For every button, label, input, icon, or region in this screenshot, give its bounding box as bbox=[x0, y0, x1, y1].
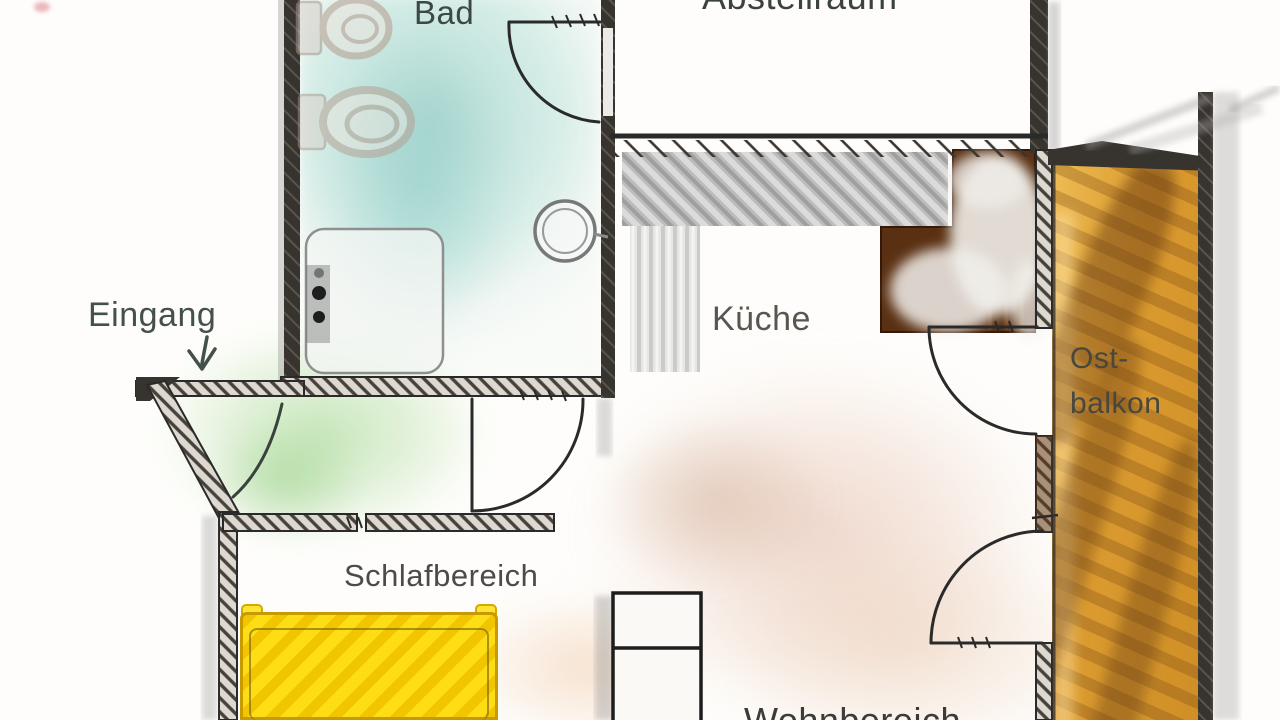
sleeping-area-walls bbox=[202, 512, 554, 720]
room-label-wohnbereich: Wohnbereich bbox=[744, 700, 961, 720]
room-label-bad: Bad bbox=[414, 0, 474, 32]
room-label-eingang: Eingang bbox=[88, 296, 216, 335]
floorplan-canvas: Bad Abstellraum Küche Eingang Ost- balko… bbox=[0, 0, 1280, 720]
entrance-door-arc bbox=[233, 404, 282, 497]
hallway-door bbox=[472, 399, 583, 511]
toilet-fixture-top bbox=[297, 0, 389, 56]
room-label-kueche: Küche bbox=[712, 300, 811, 339]
room-label-ostbalkon: Ost- balkon bbox=[1070, 336, 1161, 426]
shelf-furniture bbox=[595, 593, 701, 720]
room-label-ostbalkon-line2: balkon bbox=[1070, 381, 1161, 426]
entrance-walls bbox=[136, 377, 304, 533]
room-label-ostbalkon-line1: Ost- bbox=[1070, 336, 1161, 381]
entrance-arrow bbox=[189, 337, 215, 369]
room-label-abstellraum: Abstellraum bbox=[702, 0, 898, 18]
kitchen-balcony-door bbox=[929, 327, 1036, 434]
room-label-schlafbereich: Schlafbereich bbox=[344, 558, 538, 594]
bathroom-door bbox=[509, 22, 600, 122]
toilet-fixture-lower bbox=[299, 90, 411, 154]
sink-fixture bbox=[535, 201, 608, 261]
living-balcony-door bbox=[931, 531, 1042, 643]
bathtub-fixture bbox=[306, 229, 443, 373]
storage-room-walls bbox=[610, 0, 1060, 157]
